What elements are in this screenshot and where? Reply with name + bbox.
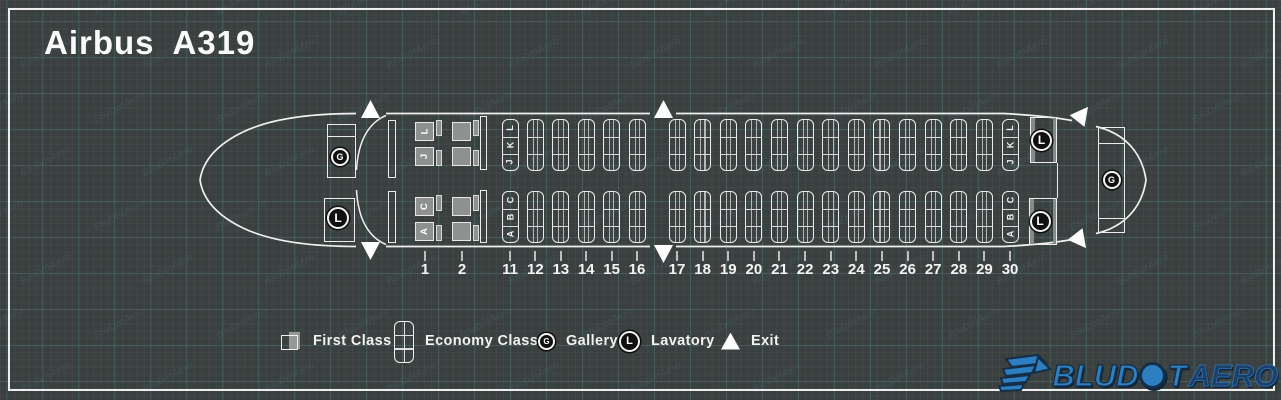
legend-label: Exit — [751, 333, 779, 349]
logo-dot-circle-icon — [1139, 362, 1166, 389]
bludotaero-logo-text: BLU D T AERO — [1052, 360, 1278, 391]
legend-item-lavatory: L Lavatory — [619, 326, 715, 356]
first-class-seat-icon — [281, 331, 302, 352]
legend-label: First Class — [313, 333, 392, 349]
logo-d: D — [1116, 360, 1138, 391]
economy-seat-icon — [394, 321, 414, 363]
logo-aero: AERO — [1188, 360, 1278, 391]
gallery-icon: G — [538, 333, 555, 350]
legend-label: Economy Class — [425, 333, 538, 349]
bludotaero-logo: BLU D T AERO — [992, 352, 1278, 398]
legend-item-gallery: G Gallery — [538, 326, 618, 356]
legend: First Class Economy Class G Gallery L La… — [0, 0, 1281, 400]
legend-item-exit: Exit — [721, 326, 779, 356]
legend-item-economy-class: Economy Class — [394, 326, 538, 356]
blueprint-canvas: BluDotAeroBluDotAeroBluDotAeroBluDotAero… — [0, 0, 1281, 400]
exit-icon — [721, 333, 740, 350]
bludotaero-logo-icon — [992, 353, 1052, 397]
logo-blu: BLU — [1052, 360, 1116, 391]
legend-item-first-class: First Class — [281, 326, 392, 356]
lavatory-icon: L — [619, 331, 640, 352]
legend-label: Lavatory — [651, 333, 715, 349]
logo-t: T — [1167, 360, 1186, 391]
legend-label: Gallery — [566, 333, 618, 349]
